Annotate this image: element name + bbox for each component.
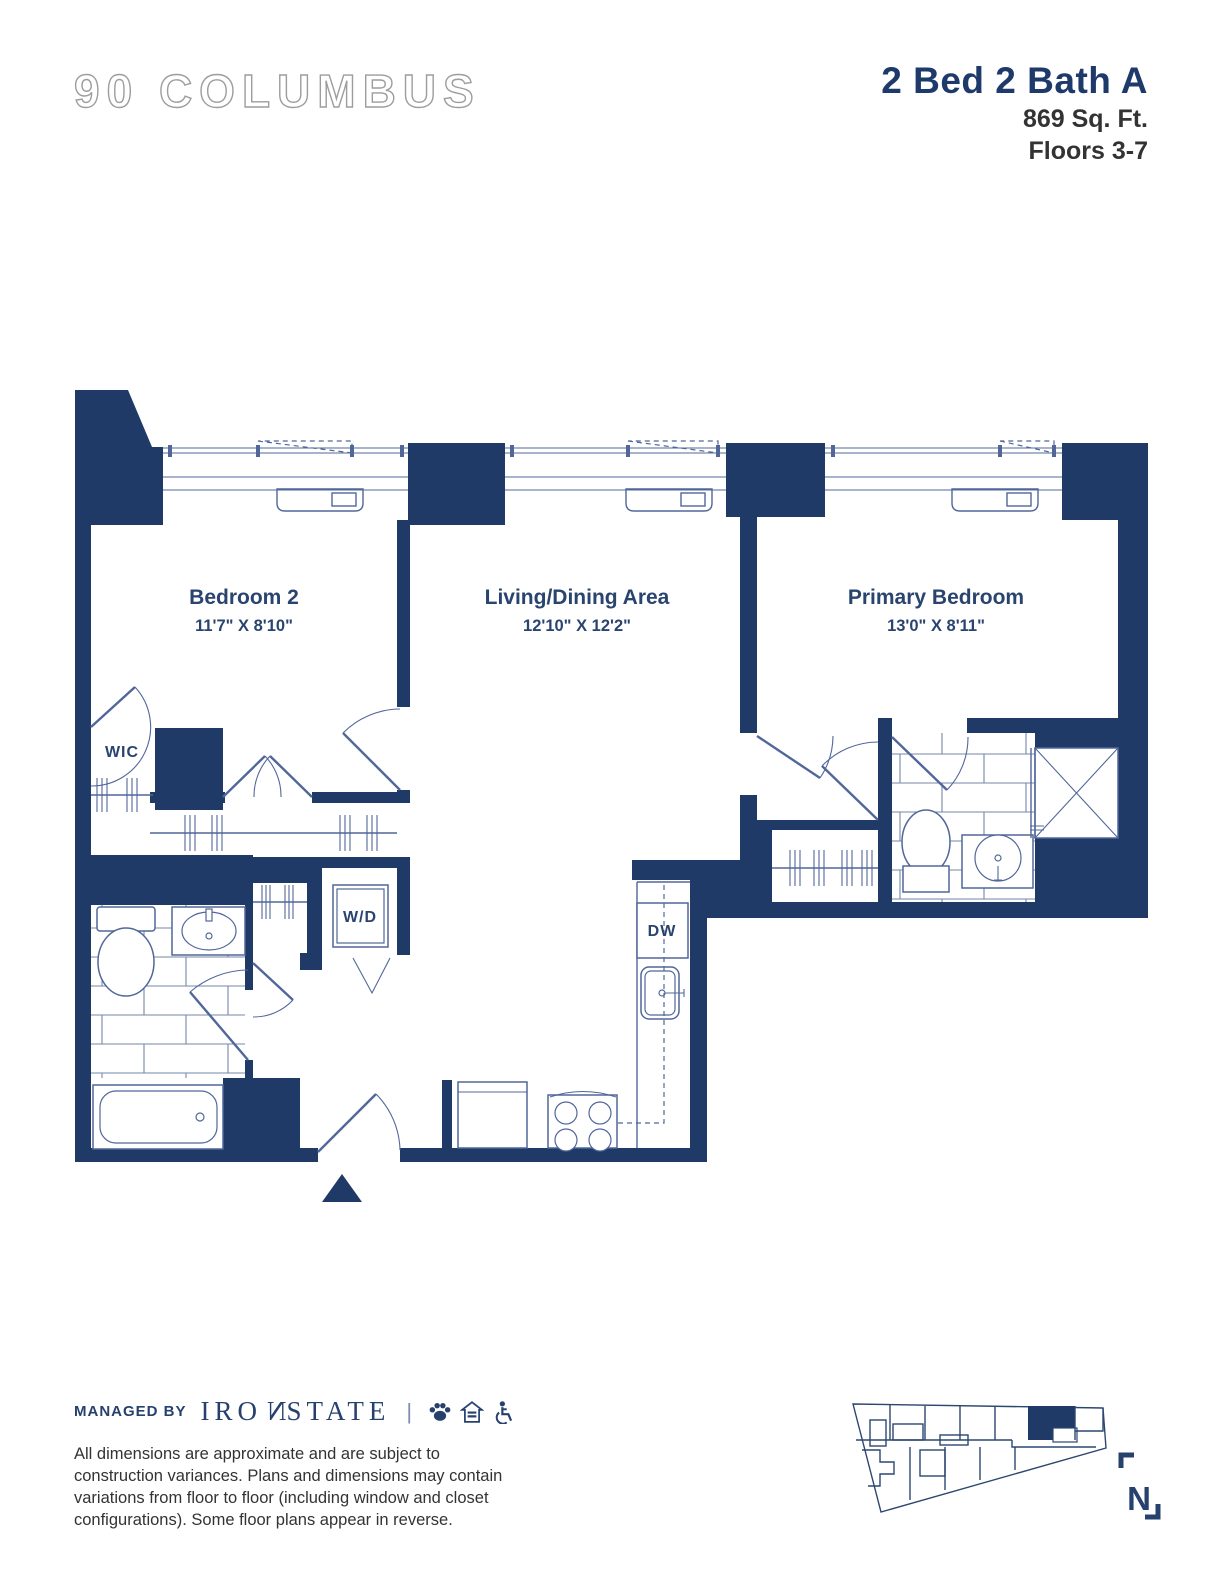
washer-dryer [333,885,390,993]
wic-label: WIC [105,744,139,761]
living-label: Living/Dining Area [485,586,670,609]
window-living [505,441,726,511]
living-dims: 12'10" X 12'2" [523,617,631,635]
compass: N [1121,1455,1158,1517]
stove [548,1092,617,1152]
shower [1030,748,1118,838]
french-doors [223,756,312,797]
kitchen-sink [641,967,684,1019]
dw-label: DW [648,923,677,940]
bedroom2-label: Bedroom 2 [189,586,299,609]
compass-n: N [1127,1480,1151,1517]
entry-arrow [322,1174,362,1202]
window-primary [825,441,1062,511]
bedroom2-door [343,709,400,790]
window-bedroom2 [163,441,408,511]
wd-label: W/D [343,909,377,926]
floor-plan: Bedroom 2 11'7" X 8'10" Living/Dining Ar… [0,0,1224,1584]
window-wall [163,441,1062,511]
primary-sink [962,835,1033,888]
small-closet [253,885,307,1017]
primary-label: Primary Bedroom [848,586,1024,609]
bathtub [93,1085,223,1149]
bedroom2-dims: 11'7" X 8'10" [195,617,293,635]
refrigerator [458,1082,527,1148]
primary-dims: 13'0" X 8'11" [887,617,985,635]
primary-closet [772,850,878,886]
floor-plan-page: Bedroom 2 11'7" X 8'10" Living/Dining Ar… [0,0,1224,1584]
bathroom-sink [172,907,245,955]
hallway-doors [757,736,878,820]
primary-toilet [902,810,950,892]
entry-door [318,1094,400,1152]
toilet [97,907,155,996]
keyplan [853,1404,1106,1512]
